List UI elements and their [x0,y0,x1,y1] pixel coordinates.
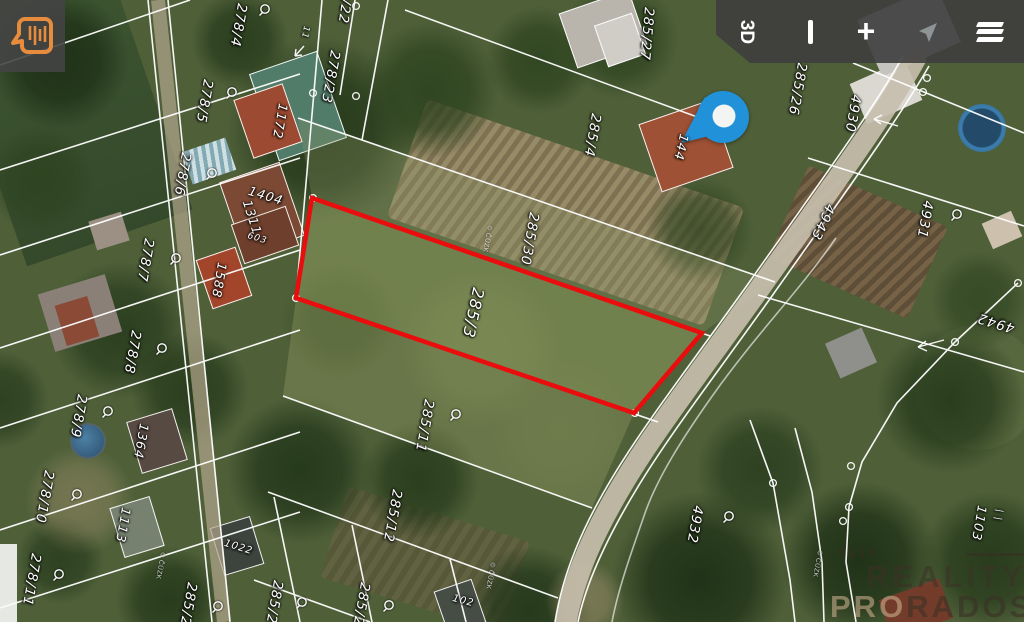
land-use-symbol [205,167,219,186]
compass-arrow-icon [912,18,940,46]
layers-icon [977,19,1003,44]
land-use-symbol [950,208,964,227]
lane-surface [158,0,224,622]
land-use-symbol [155,342,169,361]
land-use-symbol [295,596,309,615]
zoom-out-button[interactable] [796,0,824,63]
attribution-bar: © ČÚZK [0,544,17,622]
cadastral-overlay [0,0,1024,622]
app-logo[interactable] [0,0,65,72]
land-use-symbol [169,252,183,271]
view-3d-label: 3D [735,19,757,43]
parcel-label: | | [992,508,1004,521]
land-use-symbol [211,600,225,619]
land-use-symbol [70,488,84,507]
land-use-symbol [722,510,736,529]
map-toolbar: 3D + [716,0,1024,63]
map-pin-center [713,105,736,128]
compass-button[interactable] [908,0,944,63]
speech-bubble-logo-icon [11,15,55,57]
land-use-symbol [52,568,66,587]
map-canvas[interactable]: 3D + © ČÚZK REALITY PRORADOST [0,0,1024,622]
land-use-symbol [258,3,272,22]
plus-icon: + [857,13,876,50]
land-use-symbol [225,86,239,105]
land-use-symbol [101,405,115,424]
zoom-in-button[interactable]: + [848,0,884,63]
land-use-symbol [382,599,396,618]
layers-button[interactable] [970,0,1010,63]
land-use-symbol [449,408,463,427]
minus-icon [808,20,813,44]
